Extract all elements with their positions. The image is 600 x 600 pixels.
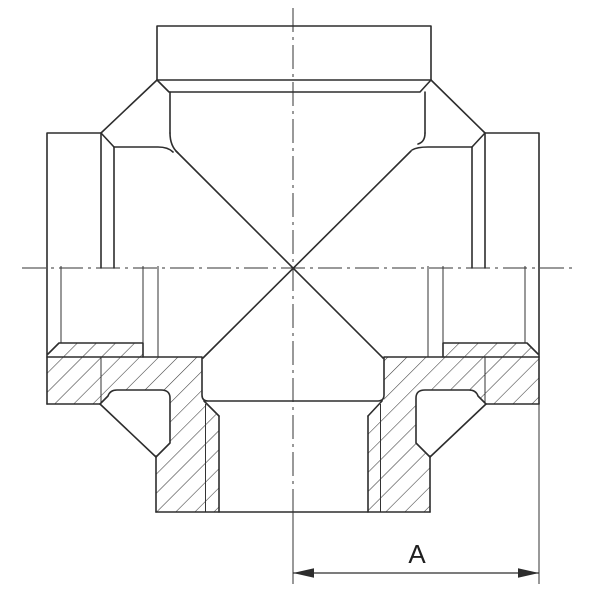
dimension-label: A <box>408 539 426 569</box>
drawing-canvas: A <box>0 0 600 600</box>
drawing-background <box>0 0 600 600</box>
hatch-right-thread-strip <box>443 343 538 357</box>
hatch-left-thread-strip <box>48 343 143 357</box>
cross-fitting-drawing: A <box>0 0 600 600</box>
